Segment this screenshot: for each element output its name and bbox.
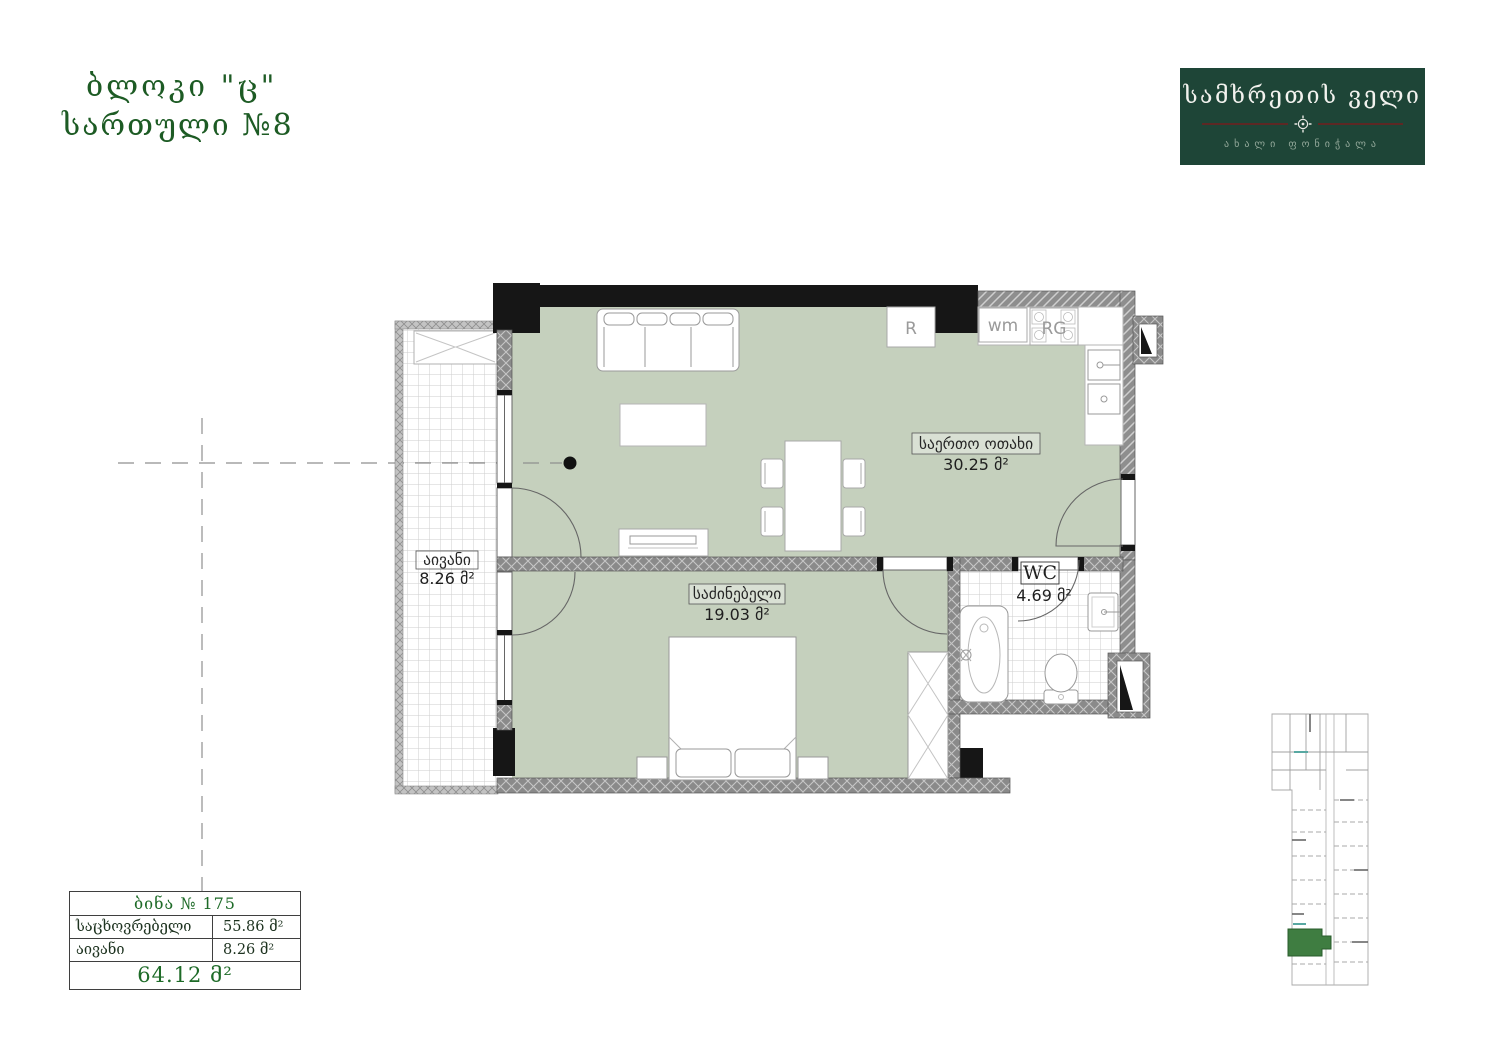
toilet: [1044, 654, 1078, 704]
range-label: RG: [1042, 319, 1067, 339]
duct-shaft-top: [1133, 316, 1163, 364]
wc-area: 4.69 მ²: [1016, 586, 1071, 605]
living-room-label: საერთო ოთახი: [919, 435, 1033, 453]
site-plan-highlighted-unit: [1288, 929, 1331, 956]
fridge-label: R: [905, 319, 917, 339]
duct-shaft-bottom: [1108, 653, 1150, 718]
area-summary-table: ბინა № 175 საცხოვრებელი 55.86 მ² აივანი …: [69, 891, 301, 990]
coffee-table: [620, 404, 706, 446]
axis-point: [564, 457, 577, 470]
row-value: 55.86 მ²: [213, 916, 300, 938]
living-room-area: 30.25 მ²: [943, 455, 1009, 474]
nightstand-left: [637, 757, 667, 779]
bathtub: [960, 606, 1008, 702]
table-row: საცხოვრებელი 55.86 მ²: [70, 916, 300, 939]
apartment-number: ბინა № 175: [70, 892, 300, 916]
range-stove: RG: [1030, 308, 1078, 345]
wardrobe: [908, 652, 948, 779]
bedroom-area: 19.03 მ²: [704, 605, 770, 624]
fridge: R: [887, 307, 935, 347]
row-label: აივანი: [70, 939, 213, 961]
row-label: საცხოვრებელი: [70, 916, 213, 938]
total-area: 64.12 მ²: [70, 962, 300, 989]
balcony-label: აივანი: [423, 551, 471, 569]
wc-label: WC: [1023, 562, 1057, 584]
washbasin: [1088, 593, 1120, 631]
ac-unit: [414, 331, 497, 364]
tv-stand: [619, 529, 708, 556]
balcony-area: 8.26 მ²: [419, 569, 474, 588]
row-value: 8.26 მ²: [213, 939, 300, 961]
washing-machine-label: wm: [988, 316, 1018, 336]
page: ბლოკი "ც" სართული №8 სამხრეთის ველი ახალ…: [0, 0, 1488, 1052]
washing-machine: wm: [979, 308, 1027, 342]
sofa: [597, 309, 739, 371]
table-row: აივანი 8.26 მ²: [70, 939, 300, 962]
bed: [669, 637, 796, 780]
nightstand-right: [798, 757, 828, 779]
bedroom-label: საძინებელი: [693, 585, 781, 603]
site-plan: [1272, 714, 1368, 985]
